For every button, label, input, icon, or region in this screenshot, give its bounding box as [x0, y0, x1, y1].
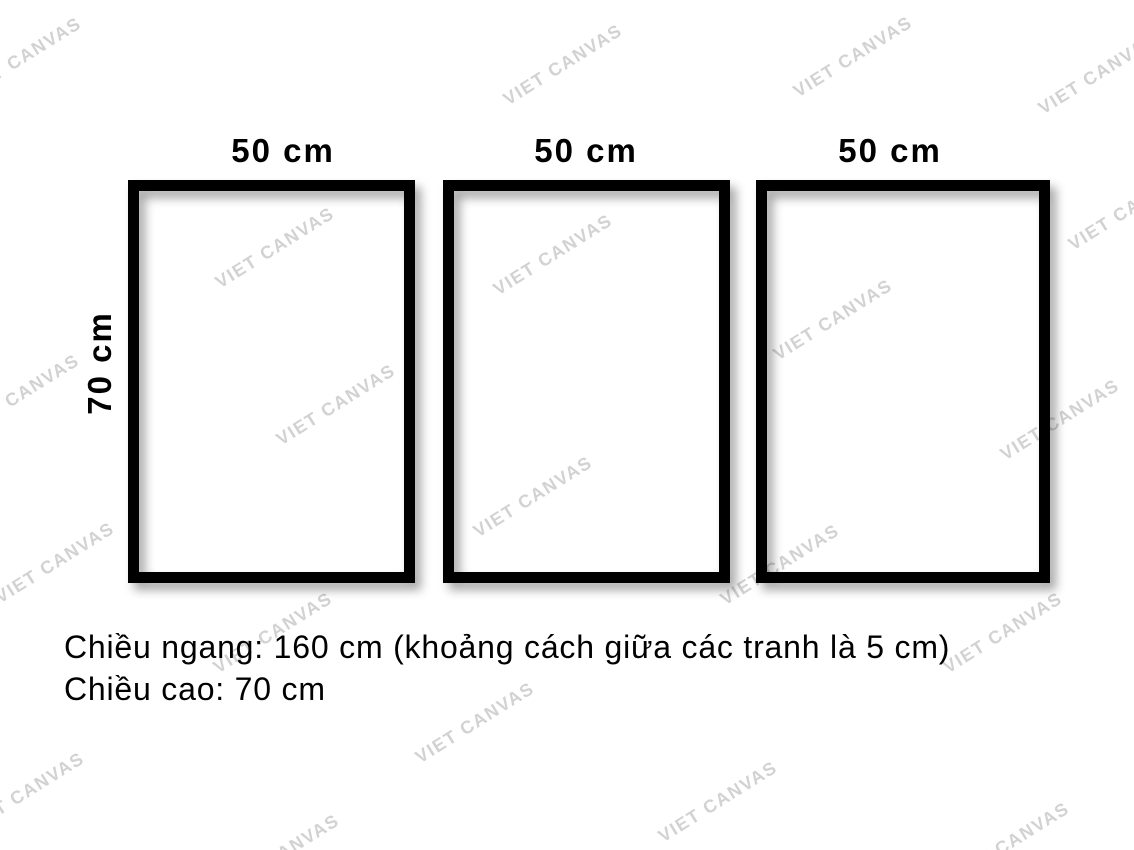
viet-canvas-watermark: VIET CANVAS — [1035, 29, 1134, 119]
dimension-description: Chiều ngang: 160 cm (khoảng cách giữa cá… — [64, 626, 950, 710]
canvas-frame-3 — [756, 180, 1050, 583]
viet-canvas-watermark: VIET CANVAS — [655, 757, 782, 847]
viet-canvas-watermark: VIET CANVAS — [0, 518, 118, 608]
frame-1-width-label: 50 cm — [231, 132, 335, 170]
viet-canvas-watermark: VIET CANVAS — [0, 13, 85, 103]
viet-canvas-watermark: VIET CANVAS — [1065, 165, 1134, 255]
viet-canvas-watermark: VIET CANVAS — [940, 588, 1067, 678]
viet-canvas-watermark: VIET CANVAS — [0, 748, 88, 838]
viet-canvas-watermark: VIET CANVAS — [947, 798, 1074, 850]
frame-height-label: 70 cm — [81, 311, 119, 415]
viet-canvas-watermark: VIET CANVAS — [500, 20, 627, 110]
dimension-diagram: VIET CANVAS VIET CANVAS VIET CANVAS VIET… — [0, 0, 1134, 850]
viet-canvas-watermark: VIET CANVAS — [217, 810, 344, 850]
total-height-text: Chiều cao: 70 cm — [64, 668, 950, 710]
canvas-frame-2 — [443, 180, 730, 583]
viet-canvas-watermark: VIET CANVAS — [790, 12, 917, 102]
frame-2-width-label: 50 cm — [534, 132, 638, 170]
canvas-frame-1 — [128, 180, 415, 583]
total-width-text: Chiều ngang: 160 cm (khoảng cách giữa cá… — [64, 626, 950, 668]
viet-canvas-watermark: VIET CANVAS — [0, 350, 83, 440]
frame-3-width-label: 50 cm — [838, 132, 942, 170]
